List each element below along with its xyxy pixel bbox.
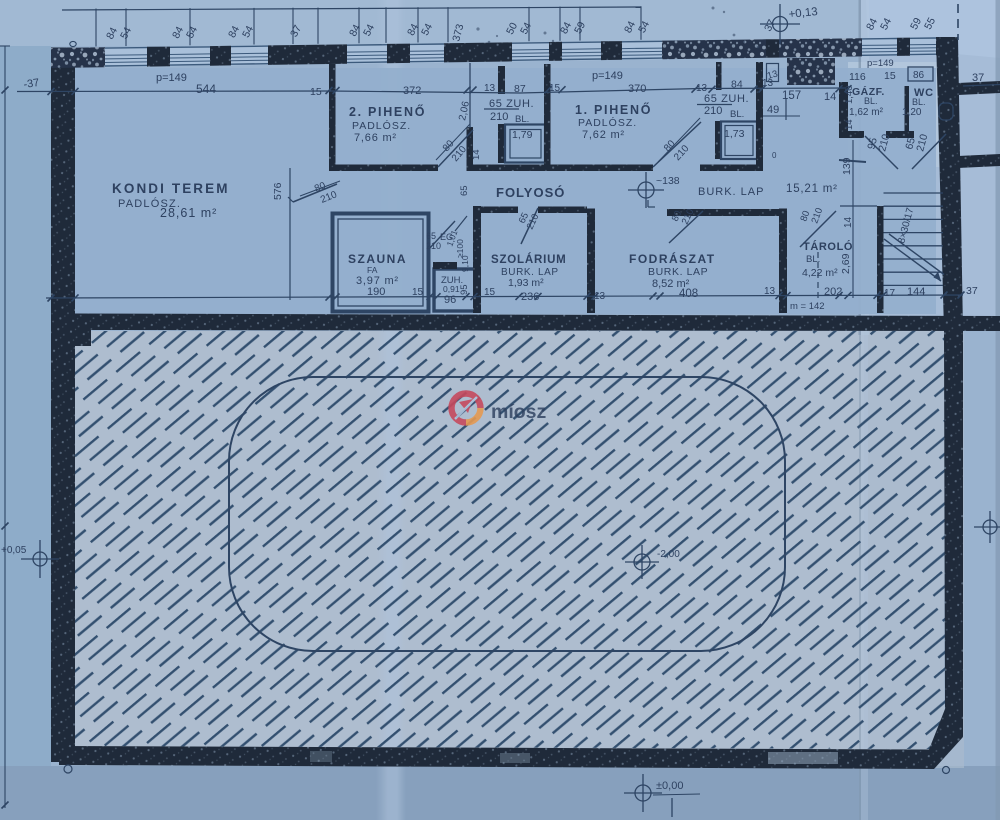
svg-text:408: 408 bbox=[679, 288, 698, 300]
svg-text:65: 65 bbox=[459, 185, 470, 196]
svg-text:13: 13 bbox=[484, 83, 496, 94]
svg-text:15: 15 bbox=[310, 86, 322, 98]
svg-text:144: 144 bbox=[907, 286, 925, 298]
svg-text:15: 15 bbox=[412, 287, 424, 298]
svg-text:65 ZUH.: 65 ZUH. bbox=[704, 93, 749, 105]
svg-text:13: 13 bbox=[764, 286, 776, 297]
svg-text:372: 372 bbox=[403, 85, 421, 97]
svg-text:15: 15 bbox=[884, 70, 896, 82]
svg-text:1,79: 1,79 bbox=[512, 129, 533, 141]
svg-text:87: 87 bbox=[514, 83, 526, 95]
svg-text:2. PIHENŐ: 2. PIHENŐ bbox=[349, 104, 426, 119]
svg-text:FODRÁSZAT: FODRÁSZAT bbox=[629, 251, 716, 266]
svg-text:p=149: p=149 bbox=[867, 58, 894, 69]
svg-text:1. PIHENŐ: 1. PIHENŐ bbox=[575, 102, 652, 117]
svg-text:7,66 m²: 7,66 m² bbox=[354, 132, 397, 144]
svg-text:370: 370 bbox=[628, 83, 646, 95]
svg-text:±0,00: ±0,00 bbox=[656, 780, 683, 792]
svg-text:1,20: 1,20 bbox=[902, 107, 922, 118]
svg-text:BL.: BL. bbox=[912, 97, 926, 107]
svg-text:SZAUNA: SZAUNA bbox=[348, 252, 407, 266]
svg-text:84: 84 bbox=[731, 79, 743, 91]
svg-text:m = 142: m = 142 bbox=[790, 301, 825, 312]
svg-text:KONDI TEREM: KONDI TEREM bbox=[112, 181, 230, 196]
svg-text:14: 14 bbox=[471, 149, 482, 160]
svg-text:BL.: BL. bbox=[806, 254, 820, 265]
svg-text:p=149: p=149 bbox=[592, 70, 623, 82]
svg-text:210: 210 bbox=[426, 241, 441, 251]
svg-text:BL.: BL. bbox=[730, 109, 744, 120]
svg-text:236: 236 bbox=[521, 291, 539, 303]
svg-text:14: 14 bbox=[824, 91, 836, 103]
svg-text:15,21 m²: 15,21 m² bbox=[786, 183, 838, 195]
svg-text:+0,05: +0,05 bbox=[1, 545, 27, 556]
svg-text:~138: ~138 bbox=[656, 175, 680, 187]
svg-text:7,62 m²: 7,62 m² bbox=[582, 129, 625, 141]
svg-text:TÁROLÓ: TÁROLÓ bbox=[803, 240, 853, 253]
svg-text:1,40: 1,40 bbox=[844, 86, 855, 105]
svg-text:1,62 m²: 1,62 m² bbox=[849, 107, 884, 118]
svg-text:FA: FA bbox=[367, 265, 378, 275]
svg-text:17: 17 bbox=[884, 288, 896, 299]
svg-text:FOLYOSÓ: FOLYOSÓ bbox=[496, 185, 565, 200]
svg-text:190: 190 bbox=[367, 286, 385, 298]
svg-text:544: 544 bbox=[196, 82, 216, 96]
svg-text:210: 210 bbox=[704, 105, 722, 117]
svg-text:139: 139 bbox=[841, 157, 853, 175]
svg-text:9,10: 9,10 bbox=[460, 255, 470, 272]
svg-text:BURK. LAP: BURK. LAP bbox=[698, 186, 764, 198]
svg-text:SZOLÁRIUM: SZOLÁRIUM bbox=[491, 253, 567, 266]
svg-text:1,73: 1,73 bbox=[724, 128, 745, 140]
svg-text:-2,00: -2,00 bbox=[657, 549, 680, 560]
svg-text:1,93 m²: 1,93 m² bbox=[508, 277, 544, 289]
svg-text:PADLÓSZ.: PADLÓSZ. bbox=[352, 119, 411, 132]
svg-text:0,91: 0,91 bbox=[443, 284, 460, 294]
svg-text:4,22 m²: 4,22 m² bbox=[802, 267, 838, 279]
svg-text:14: 14 bbox=[844, 119, 855, 130]
svg-text:157: 157 bbox=[782, 90, 801, 102]
svg-text:BL.: BL. bbox=[515, 114, 529, 125]
svg-text:210: 210 bbox=[490, 111, 508, 123]
svg-text:BL.: BL. bbox=[864, 96, 878, 106]
svg-text:65: 65 bbox=[426, 231, 436, 241]
svg-text:95: 95 bbox=[459, 284, 470, 295]
svg-text:28,61 m²: 28,61 m² bbox=[160, 206, 217, 220]
svg-text:37: 37 bbox=[966, 285, 978, 297]
svg-text:PADLÓSZ.: PADLÓSZ. bbox=[578, 116, 637, 129]
svg-text:0: 0 bbox=[772, 151, 777, 160]
svg-text:BURK. LAP: BURK. LAP bbox=[648, 266, 708, 278]
svg-text:15: 15 bbox=[484, 287, 496, 298]
svg-text:202: 202 bbox=[824, 286, 842, 298]
svg-text:86: 86 bbox=[913, 70, 925, 81]
svg-text:míosz: míosz bbox=[491, 401, 547, 423]
svg-text:65 ZUH.: 65 ZUH. bbox=[489, 98, 534, 110]
svg-text:≥100: ≥100 bbox=[455, 239, 465, 258]
svg-text:13: 13 bbox=[762, 78, 774, 89]
svg-text:p=149: p=149 bbox=[156, 72, 187, 84]
svg-text:2,69: 2,69 bbox=[840, 253, 852, 274]
svg-text:13: 13 bbox=[696, 83, 708, 94]
svg-text:13: 13 bbox=[594, 291, 606, 302]
svg-text:96: 96 bbox=[444, 294, 456, 306]
svg-text:14: 14 bbox=[843, 216, 854, 228]
svg-text:576: 576 bbox=[272, 182, 284, 200]
svg-text:37: 37 bbox=[972, 72, 984, 84]
svg-text:49: 49 bbox=[767, 104, 779, 116]
svg-text:15: 15 bbox=[549, 83, 561, 94]
svg-text:116: 116 bbox=[849, 71, 866, 83]
svg-text:-37: -37 bbox=[23, 77, 40, 91]
